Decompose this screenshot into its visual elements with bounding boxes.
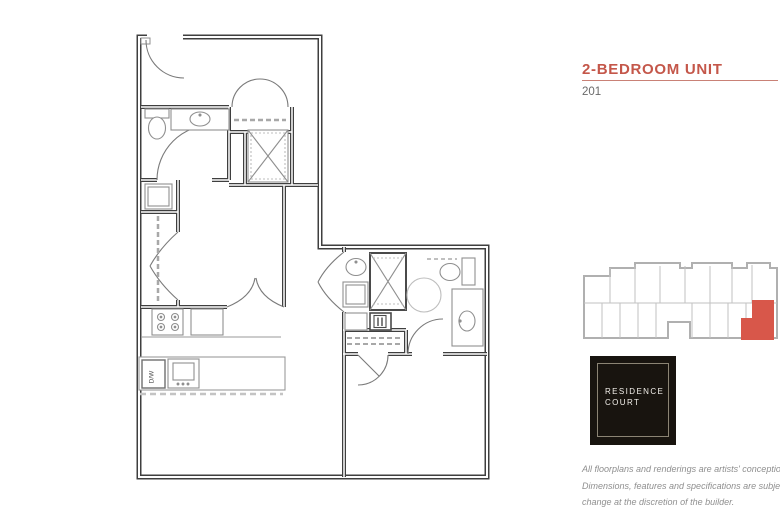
entry-door-swing <box>146 40 184 78</box>
stove <box>152 309 183 335</box>
unit-outer-walls <box>139 37 487 477</box>
toilet-2 <box>440 258 475 285</box>
page-title: 2-BEDROOM UNIT <box>582 61 723 78</box>
laundry-bifold-doors <box>318 252 344 312</box>
shower-2 <box>343 282 368 307</box>
disclaimer-line-3: change at the discretion of the builder. <box>582 494 780 511</box>
disclaimer: All floorplans and renderings are artist… <box>582 461 780 511</box>
utility-boxes <box>345 313 391 330</box>
turning-circle <box>407 278 441 312</box>
residence-court-logo: RESIDENCE COURT <box>590 356 676 445</box>
vanity-sink-1 <box>171 109 229 130</box>
logo-line1: RESIDENCE <box>605 387 664 396</box>
bedroom2-door-swing <box>358 355 388 385</box>
keyplan <box>580 256 780 348</box>
hall-closet-shelves <box>347 338 402 344</box>
unit-interior-walls <box>141 107 487 477</box>
floorplan-page: D/W <box>0 0 780 517</box>
kitchen-sink <box>168 359 199 388</box>
toilet-1 <box>145 109 169 139</box>
dishwasher-label: D/W <box>149 370 156 384</box>
logo-line2: COURT <box>605 398 640 407</box>
info-sidebar: 2-BEDROOM UNIT 201 RESIDENCE COURT All f… <box>582 0 780 517</box>
logo-text: RESIDENCE COURT <box>605 386 664 408</box>
kitchen-island: D/W <box>139 357 285 394</box>
bedroom1-closet-doors <box>150 232 178 300</box>
refrigerator <box>191 309 223 335</box>
unit-number: 201 <box>582 86 601 98</box>
sink-2 <box>346 259 366 276</box>
bath2-door-swing <box>408 319 443 354</box>
shower-1 <box>145 184 172 209</box>
disclaimer-line-1: All floorplans and renderings are artist… <box>582 461 780 478</box>
entry-closet-doors <box>232 79 288 107</box>
washer-dryer-2 <box>370 253 406 310</box>
washer-dryer-1 <box>248 130 288 182</box>
bath1-door-swing <box>157 125 212 180</box>
fixtures: D/W <box>139 109 483 394</box>
entry-opening <box>147 33 183 42</box>
vanity-sink-2 <box>452 289 483 346</box>
bedroom1-double-doors <box>227 278 284 307</box>
title-rule <box>582 80 778 81</box>
disclaimer-line-2: Dimensions, features and specifications … <box>582 478 780 495</box>
